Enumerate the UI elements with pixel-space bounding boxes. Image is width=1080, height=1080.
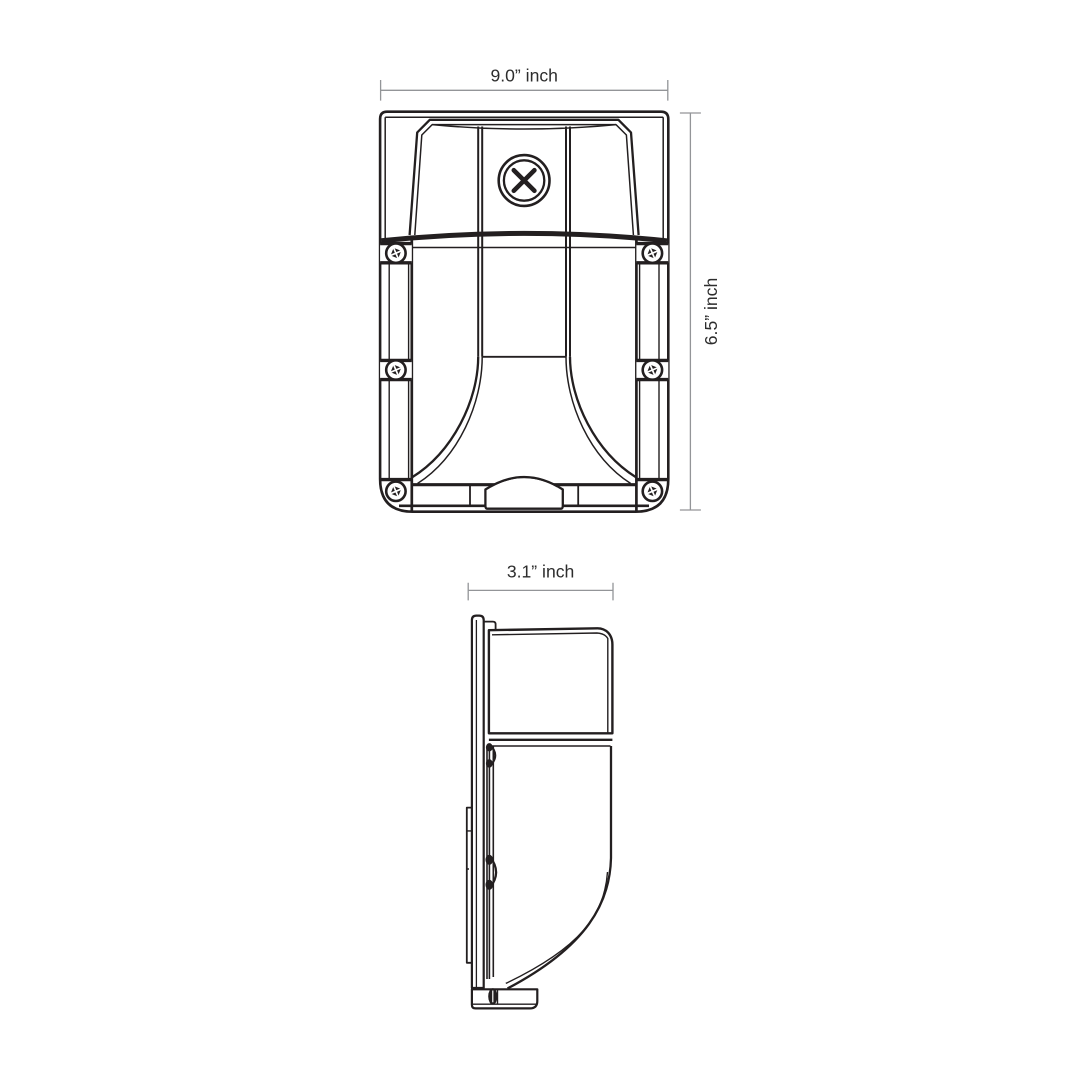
mounting-screw xyxy=(643,244,662,263)
knuckle-cap xyxy=(486,759,493,767)
knuckle-cap xyxy=(486,743,493,751)
wall-mount-plate xyxy=(472,616,484,988)
cover-curve-inner xyxy=(506,872,608,983)
height-dimension-line xyxy=(680,113,701,510)
depth-dimension-label: 3.1” inch xyxy=(507,562,574,582)
mounting-screw xyxy=(643,360,662,379)
top-cap-side xyxy=(489,628,613,746)
mounting-screw xyxy=(386,482,405,501)
height-dimension: 6.5” inch xyxy=(680,113,721,510)
bottom-bracket-outline xyxy=(472,989,537,1008)
bottom-bracket xyxy=(472,988,537,1008)
knuckle-cap xyxy=(486,855,494,865)
knuckle-cap xyxy=(486,880,494,890)
wall-pack-light-drawing: 9.0” inch 6.5” inch xyxy=(0,0,1080,1080)
mounting-screw xyxy=(386,360,405,379)
top-cap-side-outline xyxy=(489,628,613,733)
top-lip xyxy=(484,622,496,631)
side-view: 3.1” inch xyxy=(467,562,613,1009)
mounting-screw xyxy=(643,482,662,501)
cover-curve xyxy=(506,746,611,989)
depth-dimension-line xyxy=(468,583,613,601)
width-dimension: 9.0” inch xyxy=(381,66,668,101)
depth-dimension: 3.1” inch xyxy=(468,562,613,601)
front-view: 9.0” inch 6.5” inch xyxy=(380,66,721,512)
height-dimension-label: 6.5” inch xyxy=(701,278,721,345)
technical-drawing-canvas: 9.0” inch 6.5” inch xyxy=(0,0,1080,1080)
mounting-screw xyxy=(386,244,405,263)
width-dimension-label: 9.0” inch xyxy=(490,66,557,86)
mount-plate-outline xyxy=(472,616,484,988)
